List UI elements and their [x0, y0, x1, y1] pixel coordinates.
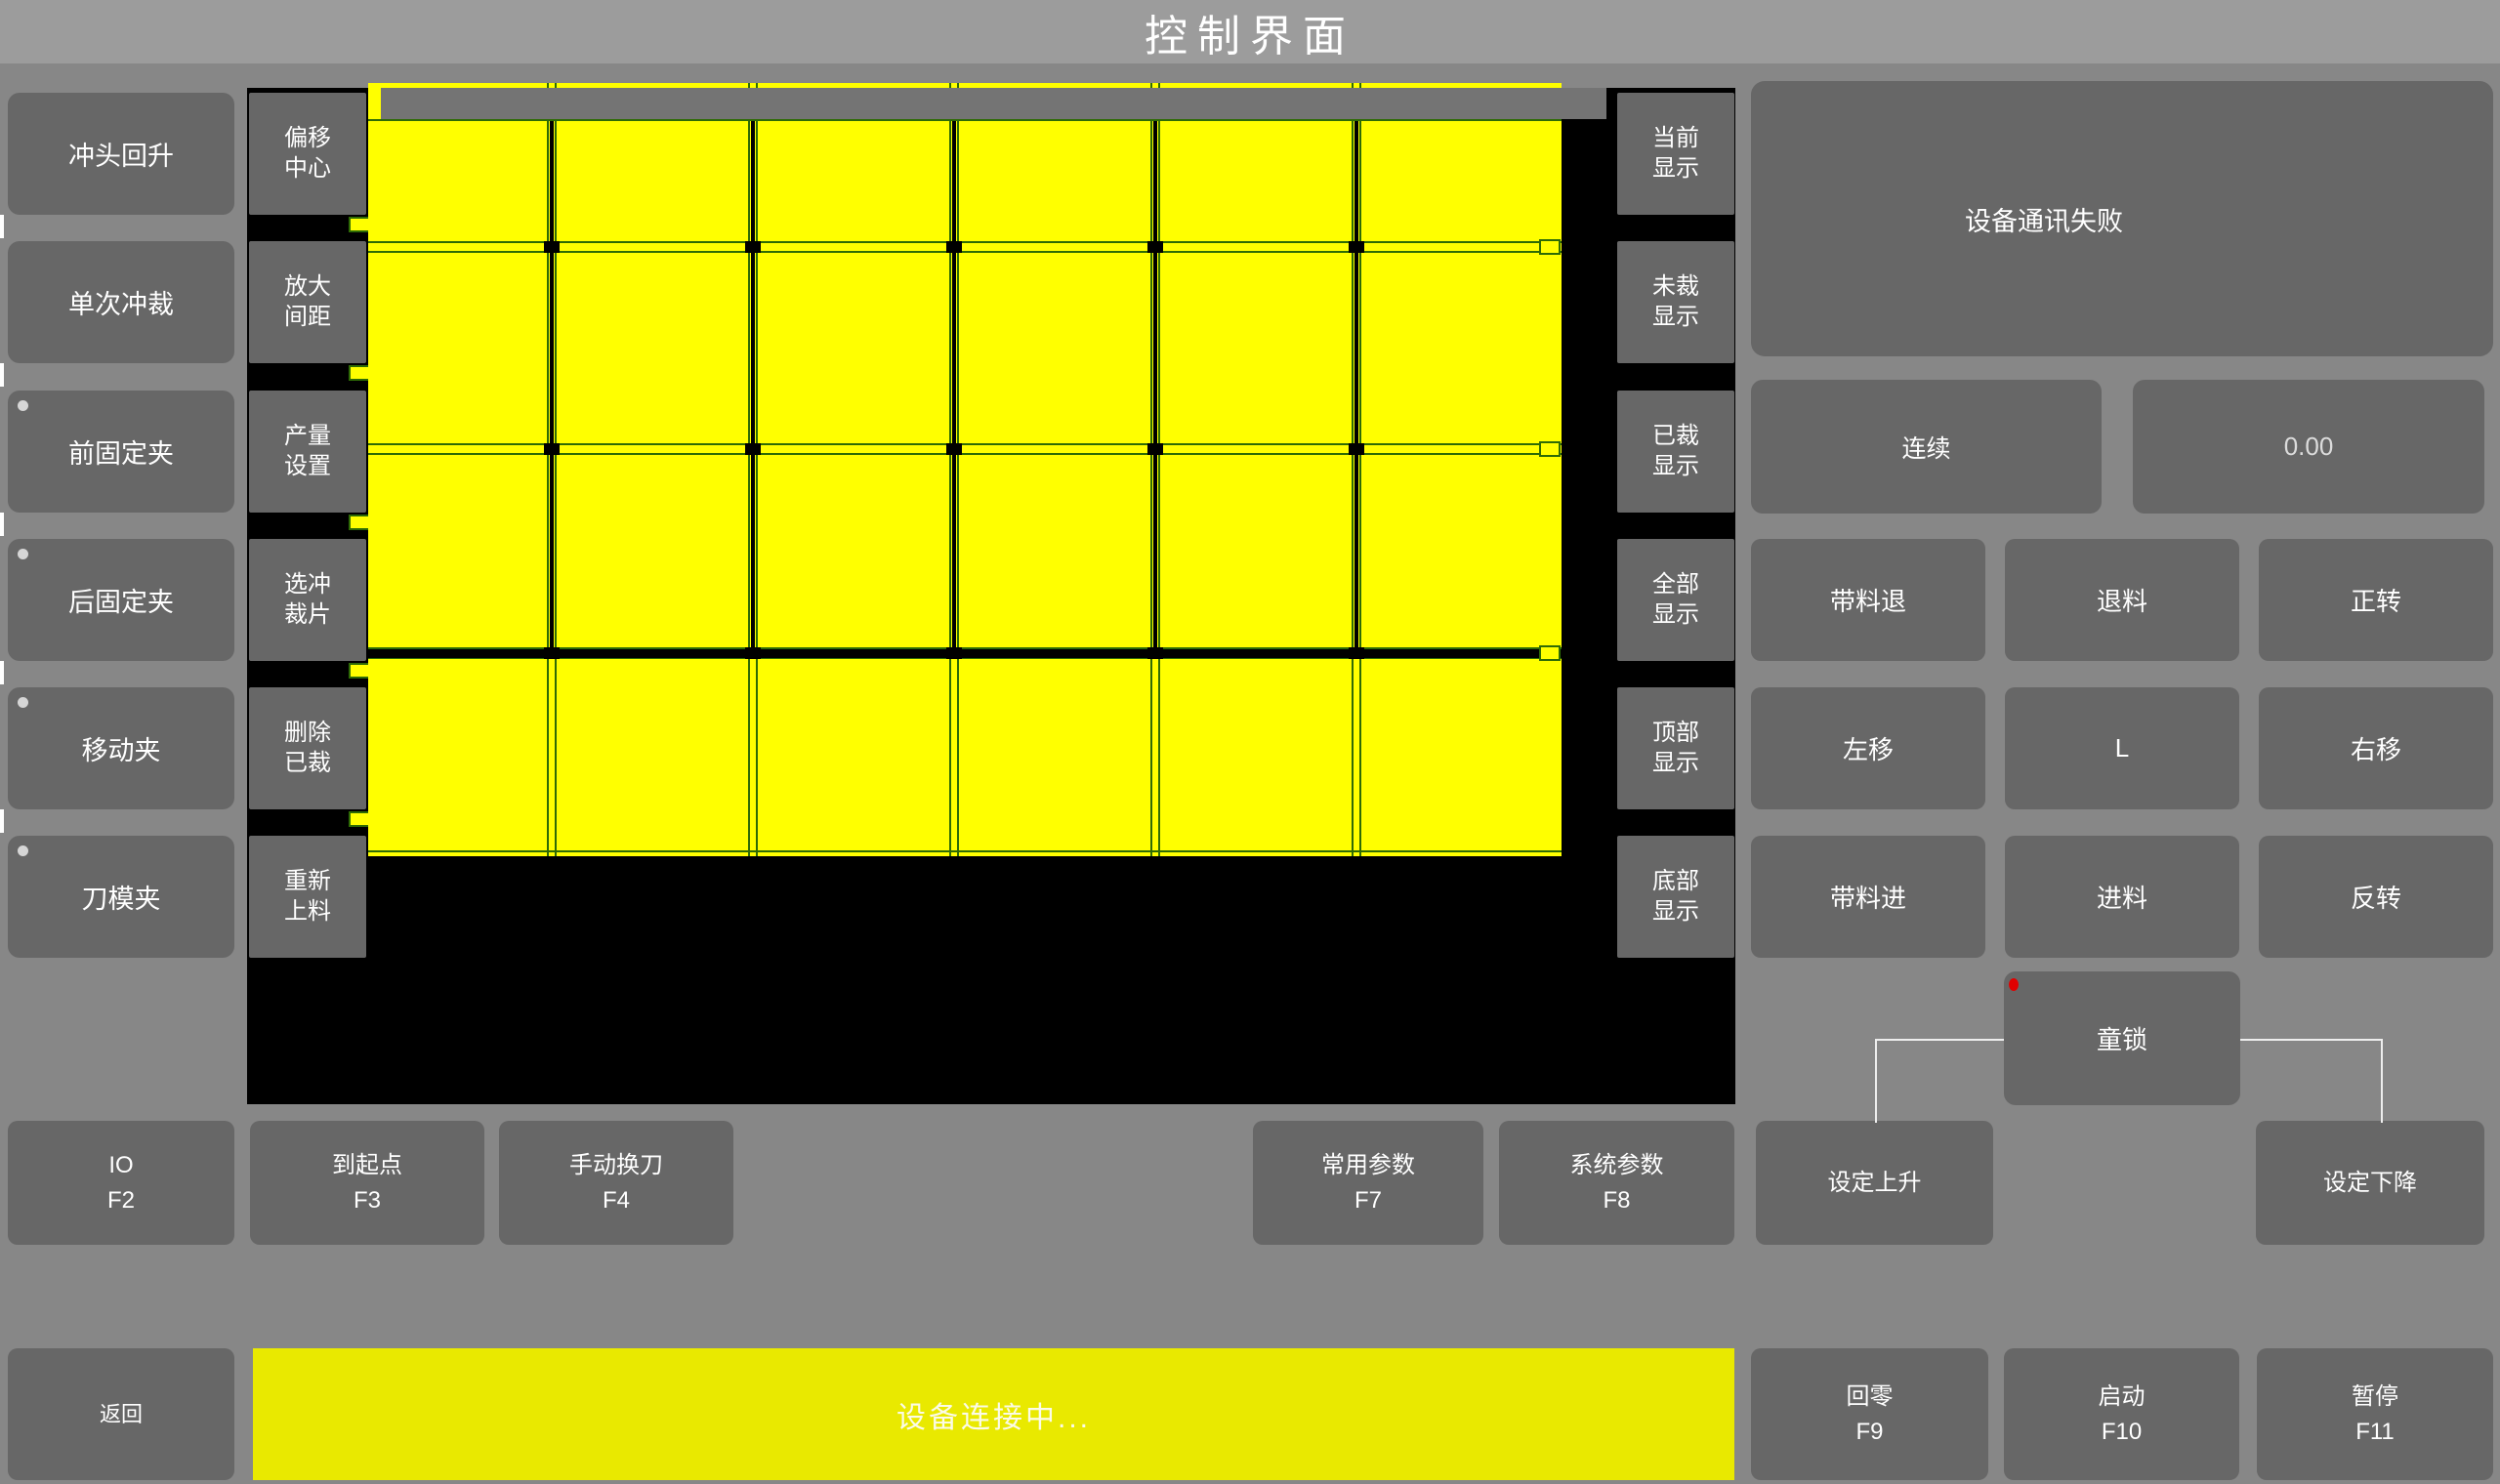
button-label: 正转 — [2351, 582, 2401, 618]
cut-corner-mark — [946, 443, 962, 455]
button-label: L — [2115, 733, 2129, 763]
button-label: 退料 — [2097, 582, 2147, 618]
button-label: 后固定夹 — [68, 581, 174, 619]
edge-tick — [0, 513, 4, 536]
cut-corner-mark — [745, 647, 761, 659]
button-label: IO — [107, 1148, 135, 1183]
cut-line-vertical-black — [751, 112, 755, 653]
cut-corner-mark — [1349, 647, 1364, 659]
uncut-display-button[interactable]: 未裁显示 — [1617, 241, 1734, 363]
cut-line-vertical — [1359, 83, 1361, 856]
fkey-label: F7 — [1321, 1183, 1415, 1218]
all-display-button[interactable]: 全部显示 — [1617, 539, 1734, 661]
value-text: 0.00 — [2284, 432, 2334, 462]
fkey-label: F4 — [569, 1183, 663, 1218]
material-tab — [349, 663, 368, 679]
continuous-button[interactable]: 连续 — [1751, 380, 2102, 514]
button-label: 启动 — [2099, 1380, 2146, 1415]
cut-line-vertical — [555, 83, 557, 856]
button-label: 底部 — [1652, 867, 1699, 897]
start-f10-button[interactable]: 启动F10 — [2004, 1348, 2239, 1480]
cut-corner-mark — [544, 241, 560, 253]
reload-material-button[interactable]: 重新上料 — [249, 836, 366, 958]
indicator-dot — [18, 845, 28, 856]
die-clamp-button[interactable]: 刀模夹 — [8, 836, 234, 958]
pause-f11-button[interactable]: 暂停F11 — [2257, 1348, 2493, 1480]
cut-corner-mark — [1349, 443, 1364, 455]
red-indicator-dot — [2009, 978, 2019, 991]
sheet-edge-tab — [1539, 645, 1561, 661]
cut-line-vertical — [748, 83, 750, 856]
to-origin-f3-button[interactable]: 到起点F3 — [250, 1121, 484, 1245]
edge-tick — [0, 661, 4, 684]
title-bar: 控制界面 — [0, 0, 2500, 63]
indicator-dot — [18, 697, 28, 708]
canvas-top-band — [381, 88, 1606, 119]
sheet-edge-tab — [1539, 239, 1561, 255]
cut-corner-mark — [1147, 241, 1163, 253]
connection-status-bar: 设备连接中... — [253, 1348, 1734, 1480]
cut-corner-mark — [544, 443, 560, 455]
descend-setting-button[interactable]: 设定下降 — [2256, 1121, 2484, 1245]
button-label: 顶部 — [1652, 719, 1699, 749]
offset-center-button[interactable]: 偏移中心 — [249, 93, 366, 215]
button-label: 中心 — [284, 154, 331, 185]
back-button[interactable]: 返回 — [8, 1348, 234, 1480]
l-button[interactable]: L — [2005, 687, 2239, 809]
rear-clamp-button[interactable]: 后固定夹 — [8, 539, 234, 661]
button-label: 显示 — [1652, 600, 1699, 631]
feed-button[interactable]: 进料 — [2005, 836, 2239, 958]
unload-button[interactable]: 退料 — [2005, 539, 2239, 661]
button-label: 放大 — [284, 272, 331, 303]
edge-tick — [0, 809, 4, 833]
button-label: 童锁 — [2097, 1020, 2147, 1056]
button-label: 移动夹 — [82, 729, 161, 767]
button-label: 回零 — [1847, 1380, 1894, 1415]
button-label: 设定下降 — [2323, 1166, 2417, 1201]
single-punch-button[interactable]: 单次冲裁 — [8, 241, 234, 363]
status-message-box: 设备通讯失败 — [1751, 81, 2493, 356]
button-label: 间距 — [284, 303, 331, 333]
cut-corner-mark — [946, 647, 962, 659]
button-label: 带料进 — [1830, 879, 1906, 915]
move-right-button[interactable]: 右移 — [2259, 687, 2493, 809]
button-label: 显示 — [1652, 154, 1699, 185]
cut-line-horizontal — [368, 119, 1562, 121]
button-label: 选冲 — [284, 570, 331, 600]
button-label: 左移 — [1843, 730, 1894, 766]
button-label: 设定上升 — [1828, 1166, 1922, 1201]
button-label: 上料 — [284, 897, 331, 927]
button-label: 到起点 — [332, 1148, 402, 1183]
button-label: 反转 — [2351, 879, 2401, 915]
rise-setting-button[interactable]: 设定上升 — [1756, 1121, 1993, 1245]
bracket-line-right — [2381, 1039, 2383, 1123]
edge-tick — [0, 363, 4, 387]
reverse-rotate-button[interactable]: 反转 — [2259, 836, 2493, 958]
sheet-edge-stub — [1562, 444, 1604, 454]
button-label: 显示 — [1652, 897, 1699, 927]
page-title: 控制界面 — [1145, 1, 1355, 63]
material-sheet — [368, 83, 1562, 856]
fkey-label: F2 — [107, 1183, 135, 1218]
control-screen: 控制界面 冲头回升 单次冲裁 前固定夹 后固定夹 移动夹 刀模夹 偏移中心 放大… — [0, 0, 2500, 1484]
button-label: 显示 — [1652, 303, 1699, 333]
top-display-button[interactable]: 顶部显示 — [1617, 687, 1734, 809]
button-label: 暂停 — [2352, 1380, 2398, 1415]
select-piece-button[interactable]: 选冲裁片 — [249, 539, 366, 661]
front-clamp-button[interactable]: 前固定夹 — [8, 391, 234, 513]
yield-setting-button[interactable]: 产量设置 — [249, 391, 366, 513]
button-label: 进料 — [2097, 879, 2147, 915]
bracket-line-left — [1875, 1039, 1877, 1123]
cut-line-vertical — [957, 83, 959, 856]
button-label: 刀模夹 — [82, 878, 161, 916]
button-label: 重新 — [284, 867, 331, 897]
button-label: 裁片 — [284, 600, 331, 631]
material-tab — [349, 515, 368, 530]
cut-line-horizontal — [368, 850, 1562, 852]
cut-line-vertical-black — [1354, 112, 1358, 653]
button-label: 手动换刀 — [569, 1148, 663, 1183]
cut-corner-mark — [544, 647, 560, 659]
cut-line-vertical — [547, 83, 549, 856]
button-label: 返回 — [100, 1397, 143, 1432]
material-tab — [349, 217, 368, 232]
button-label: 单次冲裁 — [68, 283, 174, 321]
cut-corner-mark — [745, 443, 761, 455]
delete-cut-button[interactable]: 删除已裁 — [249, 687, 366, 809]
button-label: 系统参数 — [1570, 1148, 1664, 1183]
button-label: 未裁 — [1652, 272, 1699, 303]
fkey-label: F9 — [1847, 1415, 1894, 1450]
move-clamp-button[interactable]: 移动夹 — [8, 687, 234, 809]
manual-tool-change-f4-button[interactable]: 手动换刀F4 — [499, 1121, 733, 1245]
fkey-label: F8 — [1570, 1183, 1664, 1218]
button-label: 设置 — [284, 452, 331, 482]
cut-corner-mark — [946, 241, 962, 253]
cut-display-button[interactable]: 已裁显示 — [1617, 391, 1734, 513]
button-label: 冲头回升 — [68, 135, 174, 173]
button-label: 连续 — [1901, 430, 1950, 465]
button-label: 右移 — [2351, 730, 2401, 766]
button-label: 显示 — [1652, 452, 1699, 482]
move-left-button[interactable]: 左移 — [1751, 687, 1985, 809]
cut-line-vertical — [949, 83, 951, 856]
cut-line-vertical-black — [952, 112, 956, 653]
button-label: 偏移 — [284, 124, 331, 154]
system-params-f8-button[interactable]: 系统参数F8 — [1499, 1121, 1734, 1245]
forward-rotate-button[interactable]: 正转 — [2259, 539, 2493, 661]
button-label: 删除 — [284, 719, 331, 749]
io-f2-button[interactable]: IOF2 — [8, 1121, 234, 1245]
button-label: 显示 — [1652, 749, 1699, 779]
current-display-button[interactable]: 当前显示 — [1617, 93, 1734, 215]
button-label: 产量 — [284, 422, 331, 452]
punch-return-button[interactable]: 冲头回升 — [8, 93, 234, 215]
cut-corner-mark — [1147, 647, 1163, 659]
cut-corner-mark — [745, 241, 761, 253]
cut-corner-mark — [1147, 443, 1163, 455]
cut-line-vertical-black — [1153, 112, 1157, 653]
button-label: 常用参数 — [1321, 1148, 1415, 1183]
button-label: 已裁 — [284, 749, 331, 779]
button-label: 当前 — [1652, 124, 1699, 154]
indicator-dot — [18, 400, 28, 411]
enlarge-spacing-button[interactable]: 放大间距 — [249, 241, 366, 363]
button-label: 全部 — [1652, 570, 1699, 600]
fkey-label: F3 — [332, 1183, 402, 1218]
material-tab — [349, 811, 368, 827]
home-f9-button[interactable]: 回零F9 — [1751, 1348, 1988, 1480]
child-lock-button[interactable]: 童锁 — [2004, 971, 2240, 1105]
cut-line-vertical-black — [550, 112, 554, 653]
button-label: 前固定夹 — [68, 433, 174, 471]
strip-forward-button[interactable]: 带料进 — [1751, 836, 1985, 958]
button-label: 带料退 — [1830, 582, 1906, 618]
value-display: 0.00 — [2133, 380, 2484, 514]
connection-status-text: 设备连接中... — [896, 1393, 1091, 1436]
material-tab — [349, 365, 368, 381]
status-message: 设备通讯失败 — [1965, 200, 2123, 238]
strip-back-button[interactable]: 带料退 — [1751, 539, 1985, 661]
bottom-display-button[interactable]: 底部显示 — [1617, 836, 1734, 958]
fkey-label: F11 — [2352, 1415, 2398, 1450]
sheet-edge-stub — [1562, 242, 1604, 252]
fkey-label: F10 — [2099, 1415, 2146, 1450]
sheet-edge-tab — [1539, 441, 1561, 457]
common-params-f7-button[interactable]: 常用参数F7 — [1253, 1121, 1483, 1245]
indicator-dot — [18, 549, 28, 559]
cut-line-vertical — [1158, 83, 1160, 856]
cut-line-vertical — [756, 83, 758, 856]
cut-corner-mark — [1349, 241, 1364, 253]
sheet-edge-stub — [1562, 648, 1604, 658]
edge-tick — [0, 215, 4, 238]
cut-line-vertical — [1352, 83, 1354, 856]
button-label: 已裁 — [1652, 422, 1699, 452]
cut-line-vertical — [1150, 83, 1152, 856]
